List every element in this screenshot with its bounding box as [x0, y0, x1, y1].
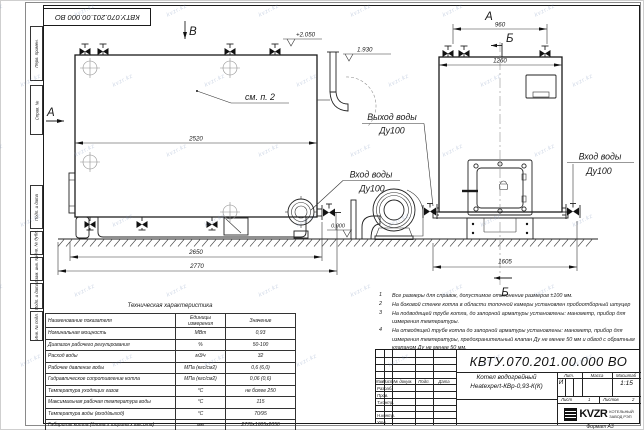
- elevation-top-text: +2.050: [296, 32, 316, 39]
- elevation-0000: 0.000: [327, 224, 352, 238]
- dim-1260-text: 1260: [493, 58, 507, 65]
- dimension-960: 960: [453, 22, 547, 45]
- control-panel: [526, 75, 556, 98]
- label-A-left: А: [46, 107, 55, 119]
- label-B-sec-top: Б: [506, 33, 514, 45]
- svg-text:Ду100: Ду100: [358, 184, 384, 194]
- label-water-inlet-right: Вход воды Ду100: [567, 152, 634, 204]
- dimension-2520: 2520: [75, 136, 317, 145]
- label-B-sec-bottom: Б: [501, 287, 509, 299]
- see-note-text: см. п. 2: [245, 92, 275, 102]
- dimension-1260: 1260: [439, 58, 562, 67]
- ground-line: [58, 239, 598, 247]
- padlock-icon: [500, 181, 508, 190]
- section-label-A-left: А: [46, 107, 64, 123]
- elevation-1930: 1.930: [343, 47, 391, 62]
- elevation-pipe-text: 1.930: [357, 47, 373, 54]
- section-label-B-top: В: [183, 21, 197, 39]
- svg-text:Ду100: Ду100: [585, 166, 611, 176]
- svg-text:Выход воды: Выход воды: [367, 112, 417, 122]
- view-label-A-top: А: [484, 11, 493, 23]
- svg-text:Вход воды: Вход воды: [350, 170, 393, 180]
- section-label-B-sec-top: Б: [491, 33, 514, 57]
- svg-text:Вход воды: Вход воды: [579, 152, 622, 162]
- dim-1605-text: 1605: [498, 259, 512, 266]
- boiler-drawing: 2520 2650 2770 960 1260: [0, 0, 644, 430]
- side-inlet-flange: [285, 196, 317, 228]
- front-inlet-valve: [562, 204, 580, 220]
- elevation-plus-2050: +2.050: [283, 32, 322, 47]
- dimension-1605: 1605: [433, 221, 577, 271]
- drawing-sheet: КВТУ.070.201.00.000 ВО Перв. примен. Спр…: [0, 0, 644, 430]
- section-label-B-sec-bottom: Б: [494, 276, 512, 299]
- callout-see-note-2: см. п. 2: [196, 90, 289, 103]
- label-B: В: [189, 26, 197, 38]
- label-A-top: А: [484, 11, 493, 23]
- dimension-2650: 2650: [70, 222, 322, 261]
- dim-2770-text: 2770: [189, 263, 204, 270]
- front-outlet-valve: [423, 204, 439, 220]
- elevation-ground-text: 0.000: [331, 224, 346, 230]
- blower-fan: [373, 189, 423, 240]
- side-view: [69, 44, 376, 238]
- front-view: [423, 42, 580, 285]
- dim-960-text: 960: [495, 22, 506, 29]
- svg-text:Ду100: Ду100: [378, 126, 404, 136]
- label-water-inlet-left: Вход воды Ду100: [311, 170, 400, 211]
- furnace-door: [462, 160, 532, 215]
- dim-2650-text: 2650: [188, 249, 203, 256]
- dim-2520-text: 2520: [188, 136, 203, 143]
